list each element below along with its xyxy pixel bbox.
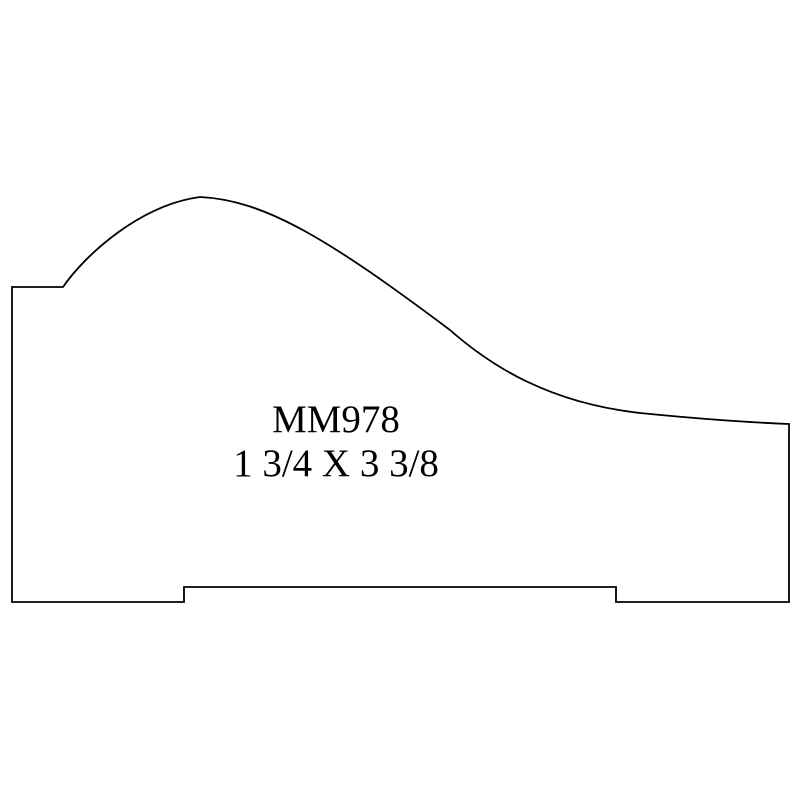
molding-profile-drawing: MM978 1 3/4 X 3 3/8: [0, 0, 800, 800]
part-number-label: MM978: [272, 398, 400, 441]
molding-profile-outline: [12, 197, 789, 602]
drawing-canvas: MM978 1 3/4 X 3 3/8: [0, 0, 800, 800]
part-dimensions-label: 1 3/4 X 3 3/8: [233, 442, 439, 485]
